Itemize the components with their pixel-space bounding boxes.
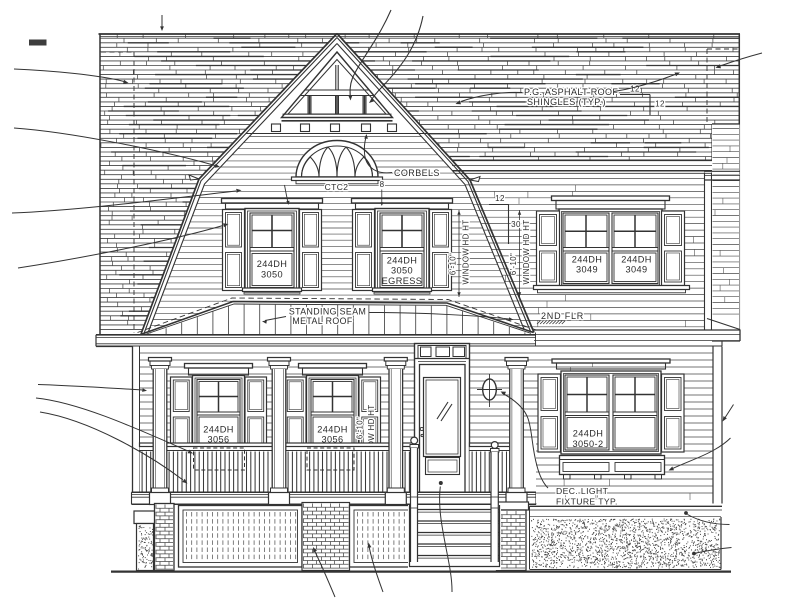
svg-text:3050-2: 3050-2 — [572, 439, 603, 449]
svg-text:METAL ROOF: METAL ROOF — [292, 316, 352, 326]
svg-text:12: 12 — [495, 194, 505, 203]
svg-text:3049: 3049 — [625, 265, 647, 275]
svg-text:SHINGLES (TYP.): SHINGLES (TYP.) — [527, 97, 606, 107]
svg-text:6'-10": 6'-10" — [449, 253, 458, 275]
svg-text:3049: 3049 — [576, 265, 598, 275]
svg-text:WINDOW HD HT: WINDOW HD HT — [522, 220, 531, 285]
svg-text:3050: 3050 — [391, 266, 413, 276]
svg-text:2ND FLR: 2ND FLR — [541, 311, 584, 321]
svg-text:244DH: 244DH — [573, 429, 604, 439]
svg-text:30: 30 — [511, 220, 521, 229]
svg-text:EGRESS: EGRESS — [382, 276, 423, 286]
svg-text:WINDOW HD HT: WINDOW HD HT — [462, 220, 471, 285]
svg-text:CORBELS: CORBELS — [394, 168, 440, 178]
svg-text:12: 12 — [655, 100, 665, 109]
svg-text:3050: 3050 — [261, 270, 283, 280]
svg-text:DEC. LIGHT: DEC. LIGHT — [556, 486, 609, 496]
svg-text:8: 8 — [380, 180, 385, 189]
svg-text:244DH: 244DH — [317, 425, 348, 435]
svg-text:244DH: 244DH — [621, 255, 652, 265]
svg-text:244DH: 244DH — [387, 256, 418, 266]
svg-text:6'-10": 6'-10" — [509, 253, 518, 275]
svg-text:P.G. ASPHALT ROOF: P.G. ASPHALT ROOF — [524, 87, 618, 97]
svg-text:244DH: 244DH — [257, 259, 288, 269]
svg-text:6'-10": 6'-10" — [356, 417, 365, 439]
svg-text:244DH: 244DH — [572, 255, 603, 265]
svg-text:CTC2: CTC2 — [325, 182, 349, 192]
svg-text:STANDING SEAM: STANDING SEAM — [289, 307, 366, 317]
svg-text:244DH: 244DH — [203, 425, 234, 435]
svg-text:FIXTURE TYP.: FIXTURE TYP. — [556, 497, 618, 507]
